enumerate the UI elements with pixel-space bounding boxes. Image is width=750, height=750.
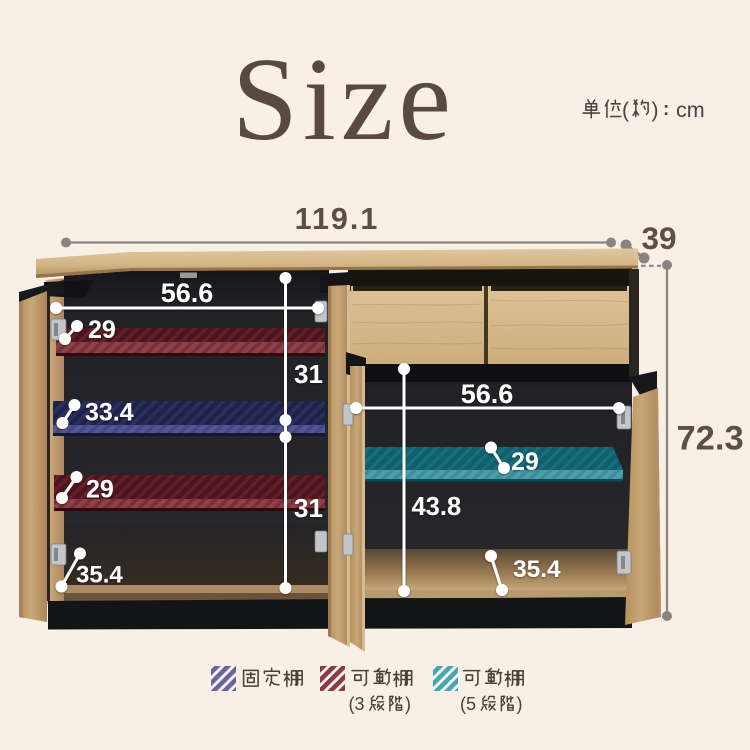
svg-text:29: 29 xyxy=(511,448,539,476)
svg-text:): ) xyxy=(652,99,659,122)
svg-text:(: ( xyxy=(622,99,629,122)
svg-text:43.8: 43.8 xyxy=(412,493,462,521)
svg-text:(3: (3 xyxy=(349,694,365,714)
svg-text:35.4: 35.4 xyxy=(513,556,561,583)
svg-text:33.4: 33.4 xyxy=(85,399,134,427)
svg-text:Size: Size xyxy=(232,33,456,165)
svg-text:56.6: 56.6 xyxy=(461,379,514,409)
svg-text:72.3: 72.3 xyxy=(677,420,744,458)
svg-text:39: 39 xyxy=(641,220,676,256)
svg-text:): ) xyxy=(517,694,523,714)
svg-text:31: 31 xyxy=(294,359,323,389)
svg-text:(5: (5 xyxy=(460,694,476,714)
svg-text:): ) xyxy=(405,694,411,714)
svg-text:cm: cm xyxy=(676,98,705,122)
svg-text:56.6: 56.6 xyxy=(161,278,214,308)
svg-text::: : xyxy=(663,99,669,120)
svg-text:29: 29 xyxy=(86,476,114,504)
svg-text:35.4: 35.4 xyxy=(76,562,123,589)
svg-text:31: 31 xyxy=(294,493,323,523)
svg-text:29: 29 xyxy=(88,316,116,344)
svg-text:119.1: 119.1 xyxy=(295,202,380,236)
